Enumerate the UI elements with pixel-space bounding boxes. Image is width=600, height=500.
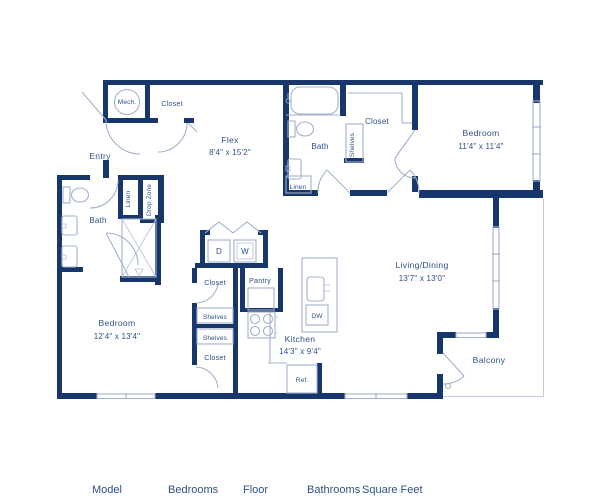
shower-icon (122, 219, 156, 277)
shelves-bedroom1-label: Shelves (349, 132, 356, 157)
bath-lower-label: Bath (89, 216, 106, 225)
closet-bedroom1-door (395, 130, 415, 178)
bedroom2-dims: 12'4" x 13'4" (94, 332, 140, 341)
pantry-label: Pantry (249, 276, 271, 285)
doors (82, 92, 464, 389)
mech-label: Mech. (118, 99, 137, 106)
footer-col-model: Model (92, 484, 122, 496)
flex-dims: 8'4" x 15'2" (209, 148, 251, 157)
footer-col-bathrooms: Bathrooms (307, 484, 360, 496)
linen-lower-label: Linen (125, 190, 132, 207)
window-bedroom2-bottom (97, 393, 155, 399)
shelves-b2-top-label: Shelves (203, 314, 228, 321)
flex-label: Flex (221, 135, 239, 145)
floorplan-page: { "colors": {"wall": "#17366b", "thin_li… (0, 0, 600, 490)
toilet-upper-icon (288, 121, 314, 137)
closet-bedroom1-label: Closet (365, 117, 389, 126)
balcony-door (443, 353, 464, 389)
door-handle-icon (446, 384, 451, 389)
bedroom2-label: Bedroom (99, 318, 136, 328)
living-label: Living/Dining (395, 260, 448, 270)
dishwasher-label: DW (311, 313, 323, 320)
bathtub-icon (286, 87, 339, 115)
window-bedroom1 (532, 101, 541, 181)
entry-closet-label: Closet (161, 99, 183, 108)
living-dims: 13'7" x 13'0" (399, 274, 445, 283)
footer-col-square-feet: Square Feet (362, 484, 423, 496)
footer-col-floor: Floor (243, 484, 268, 496)
closet-b2-bottom-door (196, 367, 218, 388)
footer-col-bedrooms: Bedrooms (168, 484, 218, 496)
vanity-sinks-icon (62, 216, 77, 267)
linen-upper-label: Linen (290, 184, 307, 191)
pantry-shelf (248, 288, 274, 310)
entry-closet-door (158, 123, 197, 152)
toilet-lower-icon (63, 187, 89, 203)
laundry-bifold-doors (205, 222, 261, 233)
washer-label: W (241, 247, 249, 256)
kitchen-label: Kitchen (285, 334, 316, 344)
window-living-right (492, 227, 500, 309)
bath-lower-door (90, 180, 118, 208)
window-kitchen-bottom (345, 393, 407, 399)
kitchen-island (302, 258, 337, 332)
dryer-label: D (216, 247, 222, 256)
shelves-b2-bottom-label: Shelves (203, 335, 228, 342)
bedroom1-dims: 11'4" x 11'4" (458, 142, 503, 151)
island-sink-icon (307, 277, 324, 301)
window-living-bottom (456, 333, 486, 338)
refrigerator-label: Ref. (296, 377, 309, 384)
bath-upper-label: Bath (311, 142, 328, 151)
room-labels: Mech. Closet Flex 8'4" x 15'2" Entry Bat… (89, 99, 506, 384)
balcony-label: Balcony (473, 355, 506, 365)
entry-label: Entry (89, 151, 111, 161)
footer-row: Model Bedrooms Floor Bathrooms Square Fe… (0, 484, 600, 500)
kitchen-dims: 14'3" x 9'4" (279, 347, 321, 356)
floorplan-drawing: Mech. Closet Flex 8'4" x 15'2" Entry Bat… (0, 0, 600, 490)
bath-upper-door (318, 170, 350, 193)
drop-zone-label: Drop Zone (146, 184, 153, 216)
bedroom1-label: Bedroom (463, 128, 500, 138)
cooktop-icon (248, 312, 278, 338)
closet-b2-top-label: Closet (204, 278, 226, 287)
closet-b2-bottom-label: Closet (204, 353, 226, 362)
